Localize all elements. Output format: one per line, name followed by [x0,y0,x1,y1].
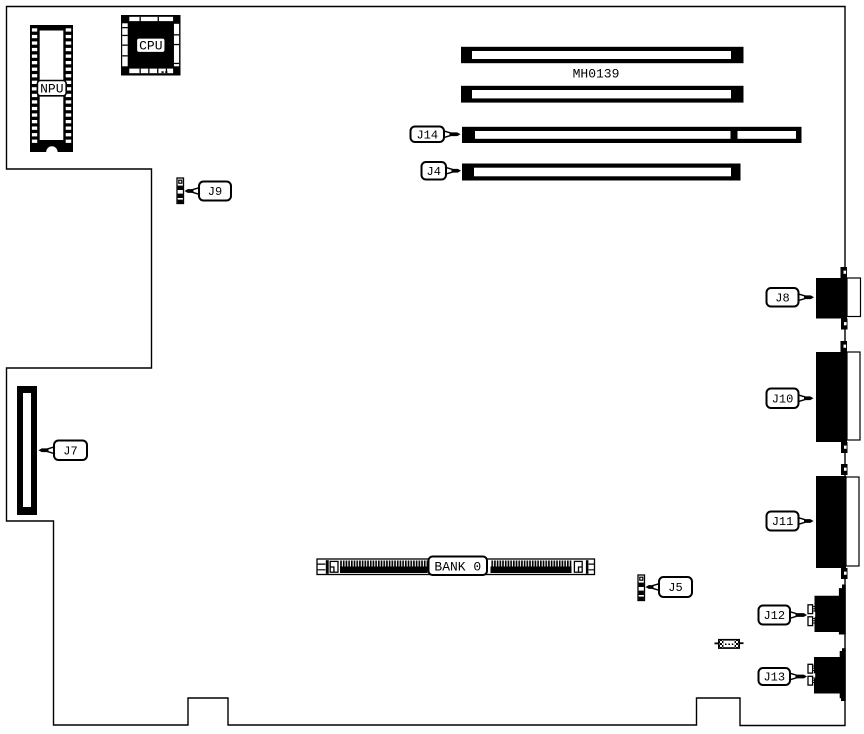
svg-text:J4: J4 [427,165,441,179]
svg-text:J10: J10 [772,392,794,406]
svg-text:BANK 0: BANK 0 [434,560,481,575]
svg-text:MH0139: MH0139 [573,67,620,82]
svg-text:J5: J5 [668,581,682,595]
svg-text:J7: J7 [63,444,77,458]
svg-text:J8: J8 [775,291,789,305]
svg-text:J9: J9 [208,185,222,199]
svg-text:J11: J11 [772,515,794,529]
svg-text:J14: J14 [416,128,438,142]
svg-text:J12: J12 [763,609,785,623]
svg-text:J13: J13 [763,671,785,685]
svg-text:CPU: CPU [139,39,162,54]
svg-text:NPU: NPU [40,81,63,96]
